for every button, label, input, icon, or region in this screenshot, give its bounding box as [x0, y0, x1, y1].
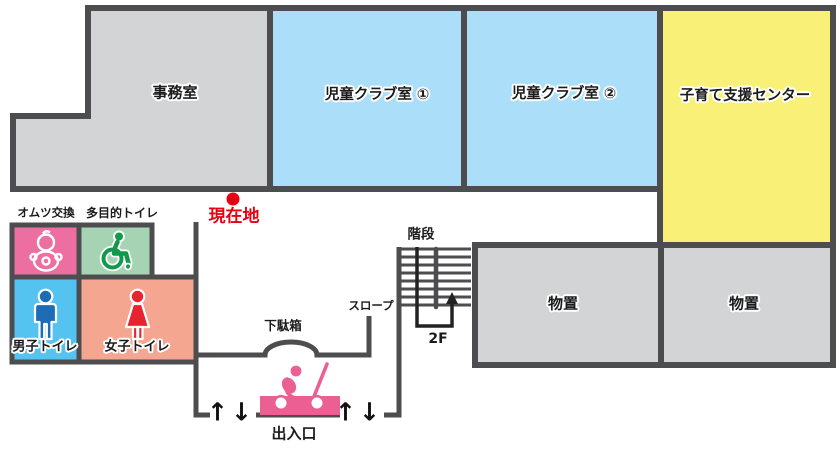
second-floor-label: 2F — [428, 332, 447, 346]
corridor-left-wall — [196, 222, 210, 415]
mens-toilet-label: 男子トイレ — [12, 341, 77, 354]
kids-club-2-label: 児童クラブ室 ② — [512, 87, 616, 102]
stair-side-wall — [384, 247, 399, 415]
shoe-box-label: 下駄箱 — [264, 320, 302, 333]
storage-2-label: 物置 — [729, 297, 759, 312]
current-location-label: 現在地 — [209, 209, 260, 226]
down-arrow-icon: ↓ — [231, 398, 255, 427]
up-arrow-icon: ↑ — [335, 398, 359, 427]
storage-1-label: 物置 — [548, 297, 578, 312]
down-arrow-icon: ↓ — [359, 398, 383, 427]
entrance-label: 出入口 — [271, 427, 316, 442]
childcare-support-center-room — [660, 8, 833, 245]
multipurpose-toilet-label: 多目的トイレ — [86, 207, 158, 219]
office-label: 事務室 — [152, 86, 197, 101]
stairs-label: 階段 — [408, 228, 435, 242]
facility-floor-map: 事務室 児童クラブ室 ① 児童クラブ室 ② 子育て支援センター 物置 物置 オム… — [0, 0, 840, 449]
current-location-dot-icon — [227, 193, 240, 206]
childcare-support-center-label: 子育て支援センター — [680, 89, 811, 104]
office-room — [13, 8, 270, 189]
floorplan-canvas — [0, 0, 840, 449]
diaper-change-label: オムツ交換 — [17, 207, 74, 219]
stroller-icon — [260, 364, 340, 415]
kids-club-1-label: 児童クラブ室 ① — [325, 88, 429, 103]
entrance-arrows-left: ↑↓ — [207, 400, 255, 425]
slope-label: スロープ — [348, 300, 393, 312]
up-arrow-icon: ↑ — [207, 398, 231, 427]
entrance-arrows-right: ↑↓ — [335, 400, 383, 425]
womens-toilet-label: 女子トイレ — [104, 341, 169, 354]
